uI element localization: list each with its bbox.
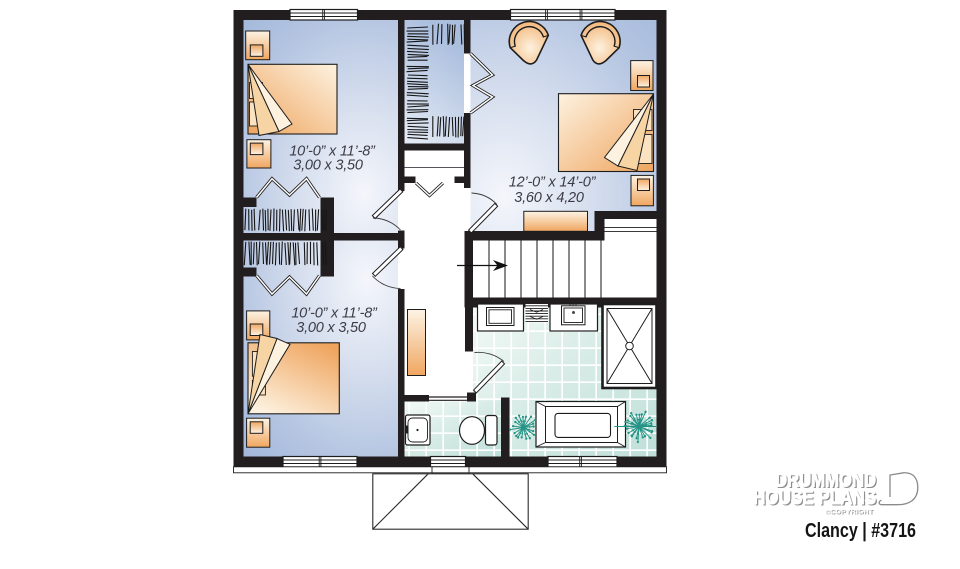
svg-text:3,60 x 4,20: 3,60 x 4,20 (514, 190, 584, 206)
svg-text:3,00 x 3,50: 3,00 x 3,50 (293, 158, 363, 174)
svg-text:12’-0” x 14’-0”: 12’-0” x 14’-0” (509, 175, 597, 191)
svg-text:HOUSE PLANS: HOUSE PLANS (753, 487, 876, 509)
svg-text:Clancy | #3716: Clancy | #3716 (805, 520, 916, 542)
svg-text:3,00 x 3,50: 3,00 x 3,50 (296, 320, 366, 336)
svg-text:©COPYRIGHT: ©COPYRIGHT (825, 508, 874, 516)
